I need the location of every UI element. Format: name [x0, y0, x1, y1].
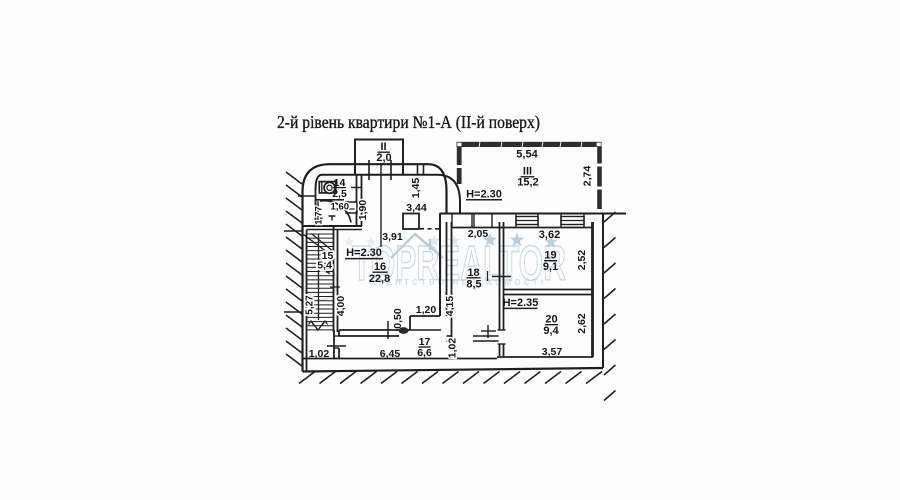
- svg-text:1,02: 1,02: [309, 348, 330, 360]
- svg-text:2-й рівень квартири №1-А (ІІ-й: 2-й рівень квартири №1-А (ІІ-й поверх): [277, 112, 540, 132]
- svg-text:6,6: 6,6: [417, 347, 432, 359]
- svg-text:2,5: 2,5: [332, 188, 347, 200]
- svg-text:2,05: 2,05: [468, 228, 489, 240]
- svg-text:2,52: 2,52: [576, 250, 588, 271]
- svg-text:АГЕНТСТВО НЕРУХОМОСТІ: АГЕНТСТВО НЕРУХОМОСТІ: [370, 278, 546, 287]
- svg-text:6,45: 6,45: [380, 348, 401, 360]
- svg-text:3,62: 3,62: [539, 229, 560, 241]
- svg-text:1,90: 1,90: [357, 200, 369, 221]
- svg-text:9,4: 9,4: [543, 325, 559, 337]
- svg-text:5,54: 5,54: [516, 149, 538, 161]
- svg-text:5,4: 5,4: [317, 260, 332, 272]
- svg-text:2,74: 2,74: [582, 166, 594, 187]
- svg-text:4,00: 4,00: [335, 296, 347, 317]
- svg-text:1,45: 1,45: [410, 178, 422, 199]
- svg-text:1,77: 1,77: [314, 206, 325, 225]
- svg-text:Н=2.30: Н=2.30: [466, 189, 502, 201]
- svg-text:0,50: 0,50: [392, 308, 404, 329]
- svg-text:8,5: 8,5: [466, 279, 481, 291]
- svg-text:16: 16: [374, 261, 386, 273]
- svg-text:3,57: 3,57: [542, 346, 563, 358]
- svg-text:5,27: 5,27: [305, 295, 316, 315]
- svg-text:2,62: 2,62: [576, 313, 588, 334]
- svg-text:19: 19: [544, 250, 556, 262]
- svg-text:1,02: 1,02: [447, 338, 459, 359]
- svg-text:9,1: 9,1: [543, 261, 558, 273]
- svg-text:1,20: 1,20: [416, 304, 437, 316]
- svg-text:15,2: 15,2: [517, 177, 538, 189]
- svg-text:22,8: 22,8: [369, 273, 390, 285]
- svg-text:Н=2.30: Н=2.30: [346, 247, 382, 259]
- svg-text:3,91: 3,91: [382, 231, 403, 243]
- svg-text:20: 20: [545, 314, 557, 326]
- svg-text:2,0: 2,0: [376, 152, 391, 164]
- svg-text:4,15: 4,15: [444, 296, 456, 317]
- svg-text:Н=2.35: Н=2.35: [503, 297, 539, 309]
- svg-text:1,60: 1,60: [331, 202, 350, 213]
- svg-text:3,44: 3,44: [406, 202, 427, 214]
